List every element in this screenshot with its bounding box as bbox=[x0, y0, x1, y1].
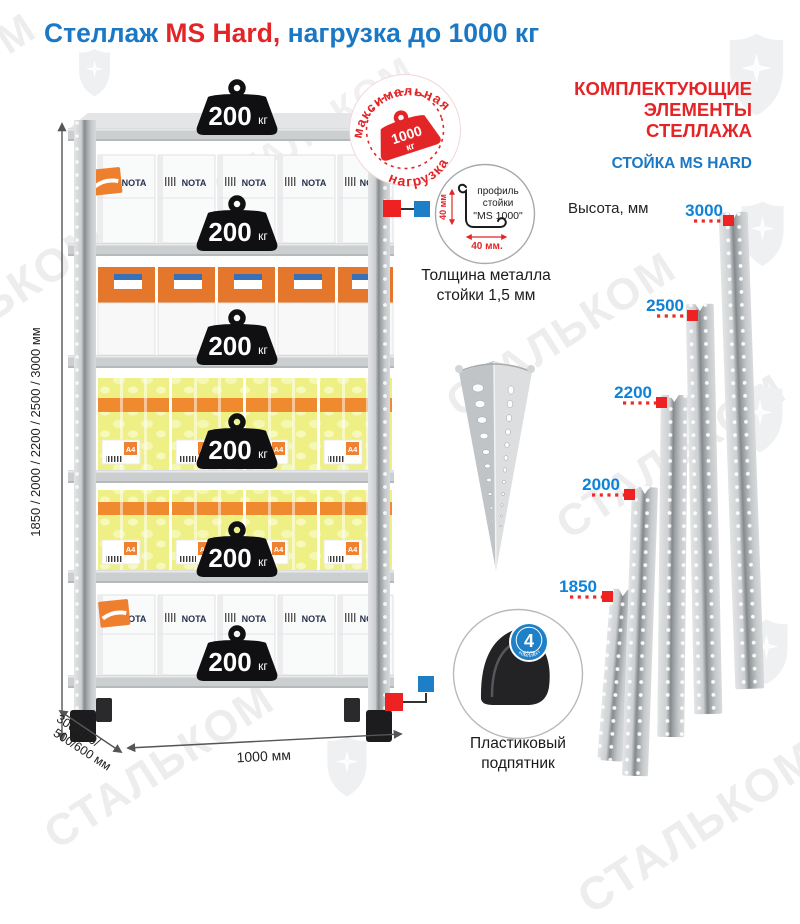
a4-label: A4 bbox=[126, 445, 136, 454]
profile-dim-horizontal: 40 мм. bbox=[471, 241, 503, 252]
post-height-label-2200: 2200 bbox=[614, 383, 652, 403]
profile-label-3: "MS 1000" bbox=[473, 210, 523, 222]
count-badge-value: 4 bbox=[524, 631, 534, 651]
shelf-sticker bbox=[98, 599, 131, 628]
components-header: КОМПЛЕКТУЮЩИЕ ЭЛЕМЕНТЫ СТЕЛЛАЖА bbox=[540, 78, 752, 141]
post-height-label-1850: 1850 bbox=[559, 577, 597, 597]
components-subheader: СТОЙКА MS HARD bbox=[540, 155, 752, 173]
foot-marker-red bbox=[385, 693, 403, 711]
profile-caption: Толщина металла стойки 1,5 мм bbox=[388, 266, 584, 306]
page-title: Стеллаж MS Hard, нагрузка до 1000 кг bbox=[44, 18, 539, 49]
a4-label: A4 bbox=[274, 445, 284, 454]
foot-caption-line1: Пластиковый bbox=[420, 734, 616, 754]
components-header-line1: КОМПЛЕКТУЮЩИЕ bbox=[540, 78, 752, 99]
profile-caption-line1: Толщина металла bbox=[388, 266, 584, 286]
post-height-label-2000: 2000 bbox=[582, 475, 620, 495]
profile-label-1: профиль bbox=[477, 185, 518, 197]
post-perspective-view bbox=[455, 361, 535, 571]
post-height-label-3000: 3000 bbox=[685, 201, 723, 221]
width-dimension-label: 1000 мм bbox=[236, 747, 291, 766]
profile-marker-blue bbox=[414, 201, 430, 217]
height-dimension-label: 1850 / 2000 / 2200 / 2500 / 3000 мм bbox=[28, 327, 43, 536]
weight-badge-200kg bbox=[197, 82, 278, 135]
foot-caption: Пластиковый подпятник bbox=[420, 734, 616, 774]
title-model: MS Hard, bbox=[165, 18, 280, 48]
box-brand-label: NOTA bbox=[242, 178, 267, 188]
profile-label-2: стойки bbox=[483, 198, 514, 209]
profile-dim-vertical: 40 мм bbox=[438, 194, 448, 220]
box-brand-label: NOTA bbox=[122, 178, 147, 188]
height-axis-label: Высота, мм bbox=[568, 200, 648, 217]
title-prefix: Стеллаж bbox=[44, 18, 165, 48]
foot-caption-line2: подпятник bbox=[420, 754, 616, 774]
post-2000 bbox=[622, 486, 658, 777]
box-brand-label: NOTA bbox=[182, 614, 207, 624]
a4-label: A4 bbox=[348, 445, 358, 454]
components-header-line2: ЭЛЕМЕНТЫ СТЕЛЛАЖА bbox=[540, 99, 752, 141]
a4-label: A4 bbox=[126, 545, 136, 554]
post-profile-detail: 40 мм 40 мм. профиль стойки "MS 1000" bbox=[436, 165, 535, 264]
title-suffix: нагрузка до 1000 кг bbox=[280, 18, 539, 48]
rack-feet bbox=[70, 698, 392, 742]
box-brand-label: NOTA bbox=[182, 178, 207, 188]
box-brand-label: NOTA bbox=[302, 614, 327, 624]
profile-caption-line2: стойки 1,5 мм bbox=[388, 286, 584, 306]
foot-marker-blue bbox=[418, 676, 434, 692]
profile-marker-red bbox=[383, 200, 401, 217]
post-height-label-2500: 2500 bbox=[646, 296, 684, 316]
box-brand-label: NOTA bbox=[242, 614, 267, 624]
post-2200 bbox=[657, 394, 688, 737]
post-2500 bbox=[686, 303, 723, 714]
a4-label: A4 bbox=[348, 545, 358, 554]
a4-label: A4 bbox=[274, 545, 284, 554]
box-brand-label: NOTA bbox=[302, 178, 327, 188]
